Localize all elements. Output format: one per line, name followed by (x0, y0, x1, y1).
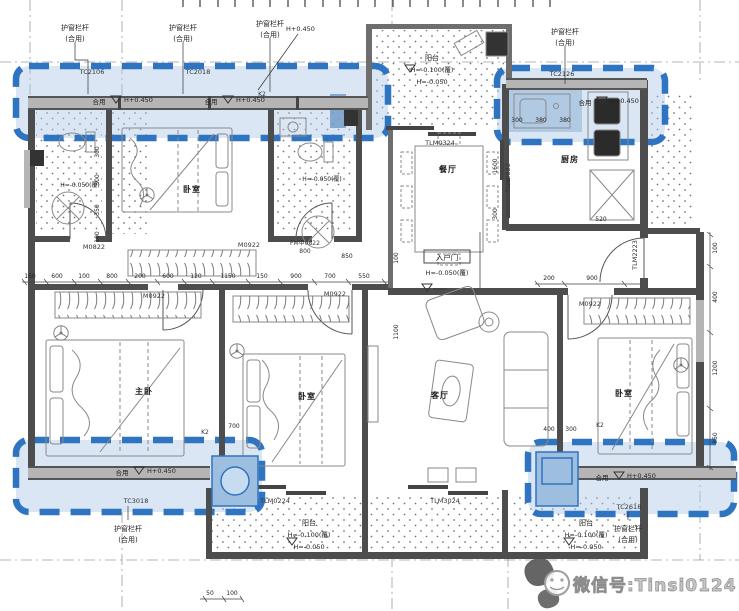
door-code: FM甲0822 (290, 240, 320, 247)
dim: 100 (393, 252, 400, 264)
dim: 150 (256, 273, 268, 280)
dim: 700 (324, 273, 336, 280)
kitchen-counter-highlight (508, 90, 582, 132)
dim: 800 (106, 273, 118, 280)
railing-label: (合用) (618, 535, 638, 544)
window-code: TC2126 (549, 70, 575, 78)
railing-label: (合用) (65, 34, 85, 43)
dim: 150 (24, 273, 36, 280)
railing-label: 护窗栏杆 (256, 19, 284, 28)
dim: 1100 (393, 324, 400, 339)
railing-label: 护窗栏杆 (169, 23, 197, 32)
door-code: TLM0822 (504, 163, 512, 194)
dim: 380 (559, 117, 571, 124)
dim: 120 (190, 273, 202, 280)
dim: 100 (78, 273, 90, 280)
dining-table (401, 133, 498, 265)
dim: 300 (492, 208, 499, 220)
dim: 850 (341, 253, 353, 260)
dim: 400 (712, 291, 719, 303)
dim: 300 (511, 117, 523, 124)
dim: 100 (94, 231, 101, 243)
balcony-left-level1: H=-0.100(覆) (288, 531, 331, 539)
door-code: M0922 (324, 290, 346, 298)
floor-plan-drawing: 护窗栏杆 (合用) 护窗栏杆 (合用) 护窗栏杆 (合用) 护窗栏杆 (合用) … (0, 0, 739, 611)
room-label-bedroom-top: 卧室 (183, 184, 201, 194)
terrace-equipment (486, 32, 508, 56)
railing-label: 护窗栏杆 (114, 524, 142, 533)
door-code: TLM2223 (631, 240, 639, 271)
level-label: H+0.450 (286, 25, 315, 33)
dim: 900 (586, 275, 598, 282)
door-code-width: 800 (299, 248, 311, 255)
door-code: TLM3024 (429, 497, 460, 505)
room-label-bedroom-right: 卧室 (615, 388, 633, 398)
floor-plan-page: 护窗栏杆 (合用) 护窗栏杆 (合用) 护窗栏杆 (合用) 护窗栏杆 (合用) … (0, 0, 739, 611)
dim: 350 (94, 204, 101, 216)
wechat-face-icon (545, 571, 569, 595)
window-code: TC2018 (185, 68, 211, 76)
room-label-dining: 餐厅 (438, 164, 457, 174)
door-code: TLM0224 (259, 497, 290, 505)
balcony-left-label: 阳台 (302, 518, 316, 527)
level-label: H+0.450 (147, 467, 176, 475)
dim: 600 (51, 273, 63, 280)
dim: 50 (206, 590, 214, 597)
dim: 400 (543, 426, 555, 433)
dim: 550 (358, 273, 370, 280)
entry-label: 入户门 (436, 252, 459, 262)
shared-label: 合用 (93, 97, 106, 106)
shared-label: 合用 (116, 468, 129, 477)
dim: 700 (228, 423, 240, 430)
watermark: 微信号:Tinsi0124 (524, 558, 736, 608)
dim: 300 (94, 146, 101, 158)
window-code: TC2618 (616, 503, 642, 511)
bath2-level: H=-0.050(覆) (302, 176, 342, 183)
balcony-top-label: 阳台 (425, 53, 439, 62)
railing-label: (合用) (118, 535, 138, 544)
tv-cabinet (368, 346, 378, 422)
shared-label: 合用 (205, 97, 218, 106)
dim: 1600 (492, 158, 499, 173)
balcony-right-level2: H=-0.050 (570, 543, 601, 551)
level-label: H+0.450 (610, 97, 639, 105)
dim: 600 (162, 273, 174, 280)
railing-label: (合用) (260, 30, 280, 39)
k2-label: K2 (201, 429, 209, 436)
dim: 1200 (712, 360, 719, 375)
dim: 100 (712, 242, 719, 254)
railing-label: (合用) (173, 34, 193, 43)
room-label-bedroom-mid: 卧室 (298, 391, 316, 401)
window-code: TC3018 (123, 497, 149, 505)
railing-label: (合用) (555, 38, 575, 47)
window-code: TC2106 (79, 68, 105, 76)
dim: 380 (535, 117, 547, 124)
dim: 100 (226, 590, 238, 597)
k2-label: K2 (596, 422, 604, 429)
room-label-kitchen: 厨房 (561, 154, 579, 164)
door-code: M0922 (143, 292, 165, 300)
dim: 300 (94, 174, 101, 186)
dim: 300 (565, 426, 577, 433)
railing-label: 护窗栏杆 (551, 27, 579, 36)
balcony-top-level2: H=-0.050 (416, 78, 447, 86)
balcony-top-level1: H=-0.100(覆) (411, 66, 454, 74)
dim: 850 (712, 432, 719, 444)
balcony-right-label: 阳台 (579, 518, 593, 527)
entry-level: H=-0.050(覆) (426, 269, 469, 277)
watermark-text: 微信号:Tinsi0124 (572, 575, 737, 596)
railing-label: 护窗栏杆 (61, 23, 89, 32)
room-label-living: 客厅 (430, 390, 449, 400)
dim: 1150 (220, 273, 235, 280)
level-label: H+0.450 (627, 472, 656, 480)
dim: 200 (134, 273, 146, 280)
level-label: H+0.450 (124, 96, 153, 104)
railing-label: 护窗栏杆 (614, 524, 642, 533)
balcony-left-level2: H=-0.050 (293, 543, 324, 551)
door-code: TLM0324 (424, 139, 455, 147)
shared-label: 合用 (579, 98, 592, 107)
balcony-right-level1: H=-0.100(覆) (565, 531, 608, 539)
door-code: M0922 (238, 241, 260, 249)
bed-bedroom-right (598, 338, 692, 454)
shared-label: 合用 (596, 473, 609, 482)
room-label-master: 主卧 (135, 386, 153, 396)
k2-label: K2 (258, 91, 266, 98)
sofa-set (368, 285, 548, 482)
dim: 200 (543, 275, 555, 282)
dim: 900 (290, 273, 302, 280)
stove-burner (594, 130, 620, 156)
top-dimension-ticks (183, 0, 550, 7)
dim: 520 (595, 216, 607, 223)
door-code: M0822 (83, 243, 105, 251)
door-code: M0922 (579, 300, 601, 308)
